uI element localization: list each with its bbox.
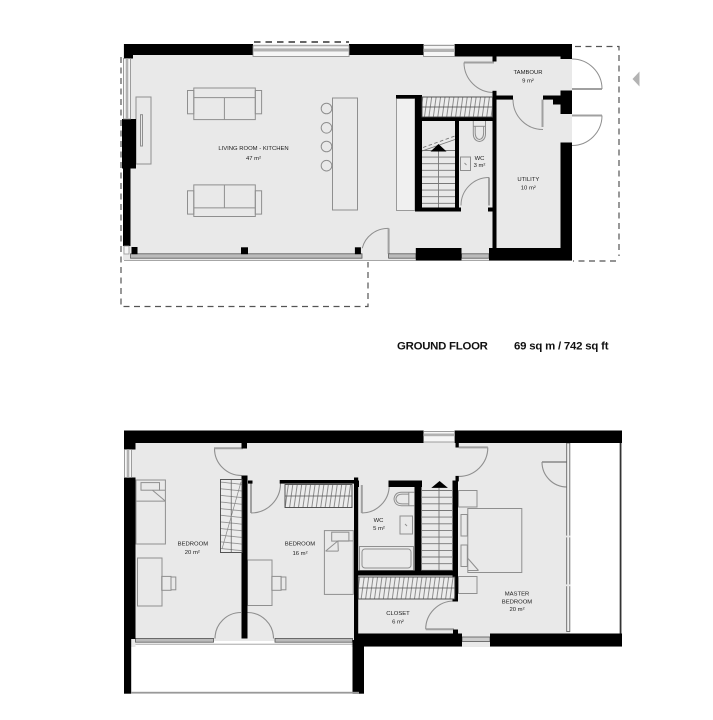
svg-text:20 m²: 20 m²: [509, 607, 524, 613]
svg-text:5 m²: 5 m²: [373, 526, 385, 532]
svg-text:WC: WC: [475, 156, 486, 162]
svg-text:UTILITY: UTILITY: [517, 177, 539, 183]
svg-text:CLOSET: CLOSET: [386, 611, 410, 617]
svg-text:MASTER: MASTER: [505, 592, 530, 598]
svg-text:WC: WC: [374, 518, 385, 524]
svg-text:3 m²: 3 m²: [474, 163, 486, 169]
svg-text:20 m²: 20 m²: [185, 550, 200, 556]
svg-text:TAMBOUR: TAMBOUR: [513, 70, 542, 76]
svg-text:69 sq m / 742 sq ft: 69 sq m / 742 sq ft: [514, 341, 609, 353]
svg-text:GROUND FLOOR: GROUND FLOOR: [397, 341, 488, 353]
svg-text:BEDROOM: BEDROOM: [178, 542, 209, 548]
svg-text:16 m²: 16 m²: [292, 551, 307, 557]
svg-text:6 m²: 6 m²: [392, 620, 404, 626]
svg-text:10 m²: 10 m²: [521, 186, 536, 192]
svg-text:LIVING ROOM - KITCHEN: LIVING ROOM - KITCHEN: [218, 146, 288, 152]
svg-text:47 m²: 47 m²: [246, 156, 261, 162]
svg-text:BEDROOM: BEDROOM: [285, 542, 316, 548]
svg-text:9 m²: 9 m²: [522, 79, 534, 85]
svg-text:BEDROOM: BEDROOM: [502, 600, 533, 606]
